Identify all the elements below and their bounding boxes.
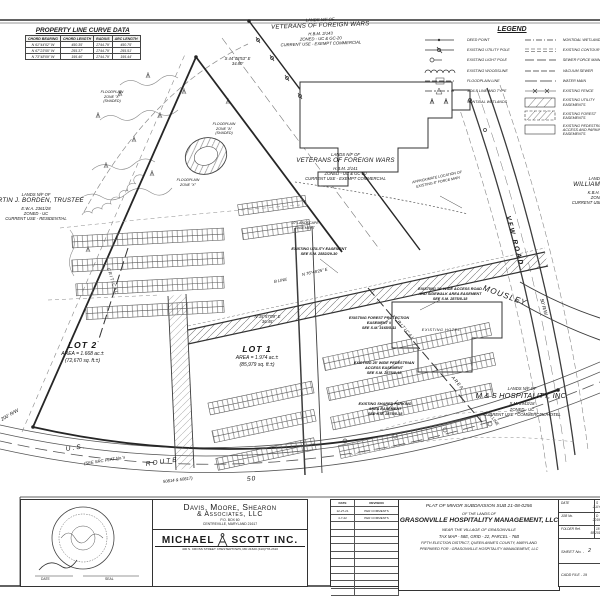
plat-title-line: OF THE LANDS OF bbox=[399, 512, 559, 516]
cell: 2744.79' bbox=[94, 54, 112, 60]
firm-box: Davis, Moore, Shearon & Associates, LLC … bbox=[152, 499, 308, 587]
rev-date-header: DATE bbox=[331, 500, 355, 507]
legend-label: SEWER FORCE MAIN bbox=[563, 58, 600, 62]
name-part-2: SCOTT INC. bbox=[231, 535, 298, 546]
text-line: ZONE "X" bbox=[162, 183, 214, 188]
cell: 195.40' bbox=[60, 54, 93, 60]
plat-title-line: PREPARED FOR : GRASONVILLE HOSPITALITY M… bbox=[399, 548, 559, 552]
legend-label: EXISTING FOREST EASEMENTS bbox=[563, 112, 600, 121]
label-borden: LANDS N/F OFMARTIN J. BORDEN, TRUSTEEE.W… bbox=[0, 192, 112, 222]
stormwater-pond bbox=[180, 132, 232, 180]
divider bbox=[594, 526, 595, 538]
label-ms-hospitality: LANDS N/F OFM & S HOSPITALITY, INC.S.M. … bbox=[438, 386, 600, 417]
plat-title-box: PLAT OF MINOR SUBDIVISION SUB 21-08-0256… bbox=[398, 499, 560, 591]
text-line: 36.45' bbox=[240, 319, 295, 324]
rev-empty bbox=[355, 537, 399, 544]
revision-table: DATE REVISION 12-27-21 PER COMMENTS 4-7-… bbox=[330, 499, 400, 587]
divider bbox=[594, 513, 595, 525]
firm-name-line1: Davis, Moore, Shearon bbox=[153, 503, 307, 511]
rev-empty bbox=[355, 574, 399, 581]
text-line: (85,979 sq. ft.±) bbox=[198, 362, 316, 369]
label-50: 50 bbox=[247, 475, 257, 484]
info-cut-col: D bbox=[596, 514, 598, 518]
legend-label: SOILS LINE AND TYPE bbox=[467, 89, 506, 93]
curve-table-title: PROPERTY LINE CURVE DATA bbox=[25, 27, 141, 34]
plat-title-line: TAX MAP - 58E, GRID - 22, PARCEL - 76B bbox=[399, 535, 559, 539]
legend-label: VACUUM SEWER bbox=[563, 69, 593, 73]
nontidal-wetlands-line-icon bbox=[524, 36, 560, 44]
text-line: (72,670 sq. ft.±) bbox=[20, 358, 145, 365]
info-sheet-label: SHEET No. - bbox=[561, 549, 584, 554]
legend-label: EXISTING LIGHT POLE bbox=[467, 58, 507, 62]
text-line: CURRENT USE - COMMERCIAL/HOTEL bbox=[438, 412, 600, 417]
label-floodplain-zone-x-2: FLOODPLAINZONE "X" bbox=[162, 178, 214, 187]
legend-label: EXISTING WOODSLINE bbox=[467, 69, 508, 73]
cell: 195.44' bbox=[112, 54, 140, 60]
rev-empty bbox=[355, 530, 399, 537]
label-existing-hotel: EXISTING HOTEL bbox=[410, 328, 472, 333]
plat-sheet: PROPERTY LINE CURVE DATA CHORD BEARING C… bbox=[0, 0, 600, 600]
label-lot-1: LOT 1AREA = 1.974 ac.±(85,979 sq. ft.±) bbox=[198, 344, 316, 368]
cell: N 73°48'09" W bbox=[26, 54, 61, 60]
rev-note: PER COMMENTS bbox=[355, 507, 399, 514]
label-landscape-easement: 10' LANDSCAPEEASEMENT bbox=[281, 221, 329, 230]
curve-row: N 73°48'09" W 195.40' 2744.79' 195.44' bbox=[26, 54, 141, 60]
label-bearing-c: N 35°57'09" E36.45' bbox=[240, 314, 295, 325]
rev-note: PER COMMENTS bbox=[355, 515, 399, 522]
text-line: VETERANS OF FOREIGN WARS bbox=[258, 157, 433, 165]
text-line: SEE S.M. 2875/8-18 bbox=[333, 371, 435, 376]
fence-line-icon bbox=[524, 87, 560, 95]
text-line: WILLIAM C. HENRY bbox=[533, 181, 600, 189]
text-line: M & S HOSPITALITY, INC. bbox=[438, 391, 600, 401]
firm-name-line2: & Associates, LLC bbox=[153, 511, 307, 518]
name-part-1: MICHAEL bbox=[162, 535, 215, 546]
plat-title-line: FIFTH ELECTION DISTRICT, QUEEN ANNE'S CO… bbox=[399, 542, 559, 546]
legend-title: LEGEND bbox=[424, 26, 600, 33]
legend-label: NONTIDAL WETLANDS bbox=[563, 38, 600, 42]
divider bbox=[594, 500, 595, 512]
label-vfw-north: LANDS N/F OFVETERANS OF FOREIGN WARSH.B.… bbox=[233, 14, 409, 50]
floodplain-line-icon bbox=[424, 77, 464, 85]
rev-empty bbox=[355, 552, 399, 559]
pedestrian-easement-swatch bbox=[524, 124, 560, 135]
rev-empty bbox=[331, 537, 355, 544]
plat-title-line: NEAR THE VILLAGE OF GRASONVILLE bbox=[399, 528, 559, 532]
rev-header: REVISION bbox=[355, 500, 399, 507]
info-cadd-file: CADD FILE - 19 bbox=[561, 573, 587, 577]
curve-data-table: PROPERTY LINE CURVE DATA CHORD BEARING C… bbox=[25, 27, 141, 60]
label-pedestrian-easement: EXISTING 25' WIDE PEDESTRIANACCESS EASEM… bbox=[333, 361, 435, 376]
rev-empty bbox=[331, 589, 355, 596]
legend-label: DEED POINT bbox=[467, 38, 490, 42]
water-main-icon bbox=[524, 77, 560, 85]
text-line: SEE S.M. 2875/8-18 bbox=[396, 297, 504, 302]
rev-empty bbox=[331, 522, 355, 529]
nontidal-wetlands-icon bbox=[424, 97, 464, 106]
text-line: SEE S.M. 2882/29-30 bbox=[270, 252, 368, 257]
label-shared-parking-easement: EXISTING SHARED PARKINGAREA EASEMENTSEE … bbox=[336, 402, 434, 417]
rev-empty bbox=[355, 522, 399, 529]
legend-right-column: NONTIDAL WETLANDS EXISTING CONTOUR SEWER… bbox=[524, 36, 600, 138]
forest-easement-swatch bbox=[524, 110, 560, 121]
rev-empty bbox=[331, 567, 355, 574]
info-sheet-number: 2 bbox=[588, 548, 591, 554]
info-cut-col: S bbox=[596, 501, 598, 505]
legend-label: EXISTING PEDESTRIAN ACCESS AND PARKING E… bbox=[563, 124, 600, 137]
rev-empty bbox=[355, 581, 399, 588]
rev-empty bbox=[331, 544, 355, 551]
rev-empty bbox=[331, 574, 355, 581]
label-lot-2: LOT 2AREA = 1.668 ac.±(72,670 sq. ft.±) bbox=[20, 340, 145, 364]
utility-easement-swatch bbox=[524, 97, 560, 108]
text-line: (SHADED) bbox=[86, 99, 138, 104]
text-line: MARTIN J. BORDEN, TRUSTEE bbox=[0, 197, 112, 205]
light-pole-icon bbox=[424, 56, 464, 64]
rev-date: 4-7-22 bbox=[331, 515, 355, 522]
rev-empty bbox=[331, 530, 355, 537]
text-line: CURRENT USE - COMMERCIAL bbox=[533, 200, 600, 205]
text-line: CURRENT USE - RESIDENTIAL bbox=[0, 216, 112, 221]
legend-label: EXISTING UTILITY POLE bbox=[467, 48, 510, 52]
date-label: DATE bbox=[41, 577, 50, 581]
legend-label: NONTIDAL WETLANDS bbox=[467, 100, 507, 104]
seal-label: SEAL bbox=[105, 577, 114, 581]
rev-empty bbox=[355, 559, 399, 566]
legend-left-column: DEED POINT EXISTING UTILITY POLE EXISTIN… bbox=[424, 36, 510, 138]
text-line: (SHADED) bbox=[198, 131, 250, 136]
label-henry: LANDS N/F OFWILLIAM C. HENRYK.B.H. 3347/… bbox=[533, 176, 600, 206]
legend-label: FLOODPLAIN LINE bbox=[467, 79, 500, 83]
legend-label: EXISTING CONTOUR bbox=[563, 48, 600, 52]
signature-squiggle bbox=[39, 560, 77, 570]
soils-line-icon bbox=[424, 87, 464, 95]
contour-line-icon bbox=[524, 46, 560, 54]
deed-point-icon bbox=[424, 36, 464, 44]
legend: LEGEND DEED POINT EXISTING UTILITY POLE … bbox=[424, 26, 600, 138]
legend-label: EXISTING FENCE bbox=[563, 89, 594, 93]
drafting-compass-icon bbox=[216, 533, 229, 546]
rev-empty bbox=[355, 544, 399, 551]
firm2-address: 400 S. CROSS STREET CHESTERTOWN, MD 2162… bbox=[153, 548, 307, 552]
rev-date: 12-27-21 bbox=[331, 507, 355, 514]
sewer-force-main-icon bbox=[524, 56, 560, 64]
label-vfw-mid: LANDS N/F OFVETERANS OF FOREIGN WARSH.B.… bbox=[258, 152, 433, 182]
text-line: LOT 2 bbox=[20, 340, 145, 351]
info-cut-col: 18 bbox=[596, 527, 600, 531]
plat-title-line: PLAT OF MINOR SUBDIVISION SUB 21-08-0256 bbox=[399, 504, 559, 509]
text-line: LOT 1 bbox=[198, 344, 316, 355]
label-floodplain-zone-x: FLOODPLAINZONE "X"(SHADED) bbox=[86, 90, 138, 104]
woodsline-icon bbox=[424, 67, 464, 75]
rev-empty bbox=[331, 581, 355, 588]
legend-label: EXISTING UTILITY EASEMENTS bbox=[563, 98, 600, 107]
info-box: DATE JULY '21 S JOB No. 2019012 D FOLDER… bbox=[558, 499, 600, 587]
legend-label: WATER MAIN bbox=[563, 79, 586, 83]
text-line: 34.80' bbox=[210, 61, 265, 66]
label-bearing-a: S 44°03'53" E34.80' bbox=[210, 56, 265, 67]
surveyor-seal bbox=[21, 500, 153, 586]
utility-pole-icon bbox=[424, 46, 464, 54]
rev-empty bbox=[355, 589, 399, 596]
rev-empty bbox=[331, 552, 355, 559]
text-line: EASEMENT bbox=[281, 226, 329, 231]
firm-address-2: CENTREVILLE, MARYLAND 21617 bbox=[153, 522, 307, 526]
plat-owner-name: GRASONVILLE HOSPITALITY MANAGEMENT, LLC bbox=[399, 518, 559, 525]
rev-empty bbox=[355, 567, 399, 574]
text-line: SEE S.M. 2875/8-18 bbox=[336, 412, 434, 417]
rev-empty bbox=[331, 559, 355, 566]
seal-box: DATE SEAL bbox=[20, 499, 154, 587]
label-floodplain-zone-a: FLOODPLAINZONE "A"(SHADED) bbox=[198, 122, 250, 136]
michael-scott-name: MICHAEL SCOTT INC. bbox=[155, 533, 305, 547]
label-utility-easement: EXISTING UTILITY EASEMENTSEE S.M. 2882/2… bbox=[270, 247, 368, 257]
vacuum-sewer-icon bbox=[524, 67, 560, 75]
